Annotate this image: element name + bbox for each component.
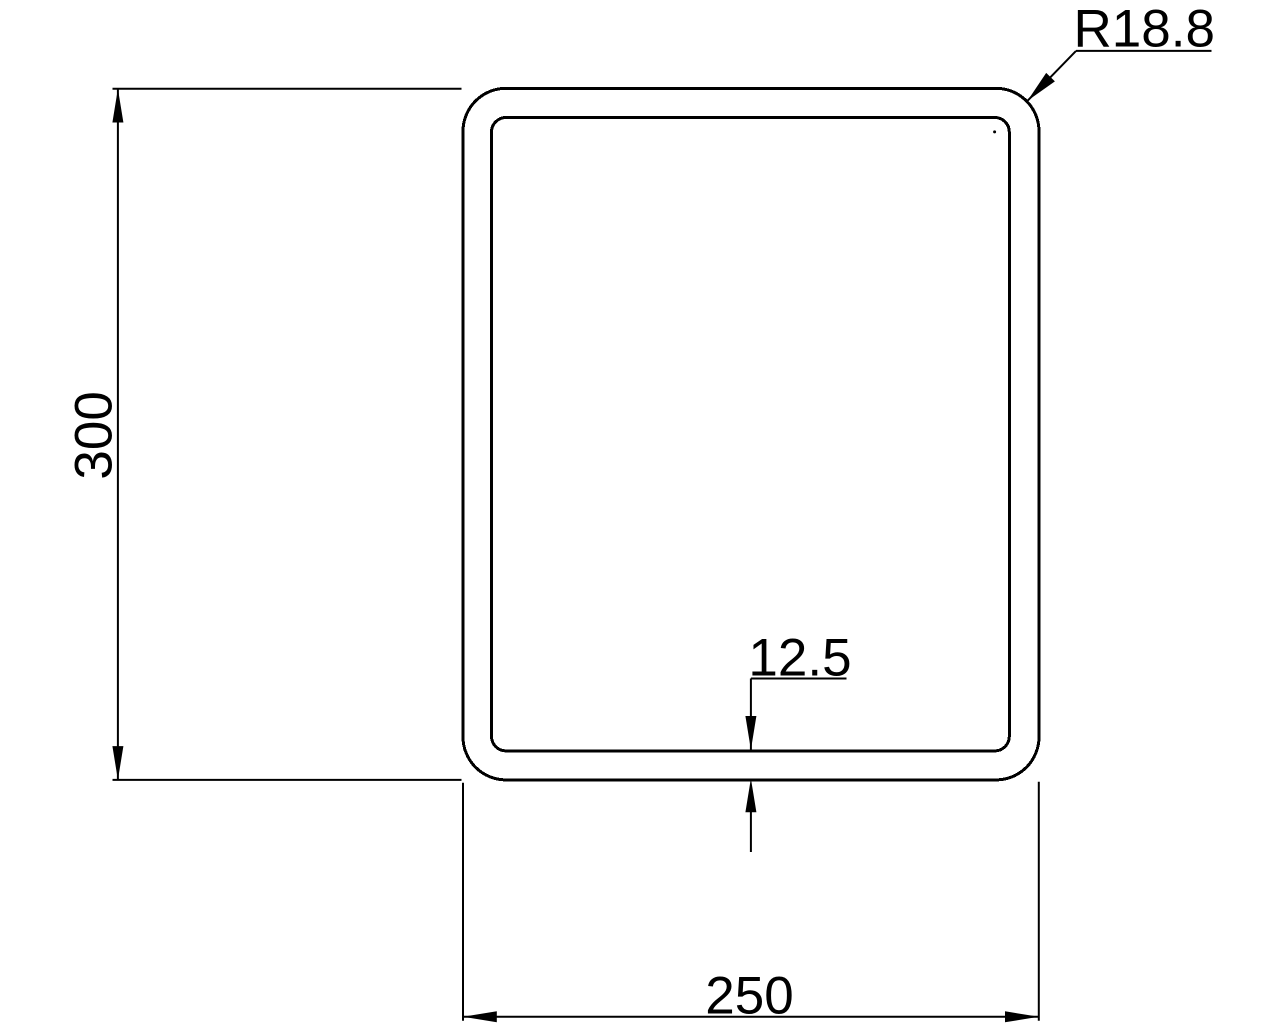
svg-text:300: 300 (65, 391, 124, 479)
svg-text:250: 250 (705, 967, 793, 1024)
svg-text:R18.8: R18.8 (1074, 0, 1215, 58)
